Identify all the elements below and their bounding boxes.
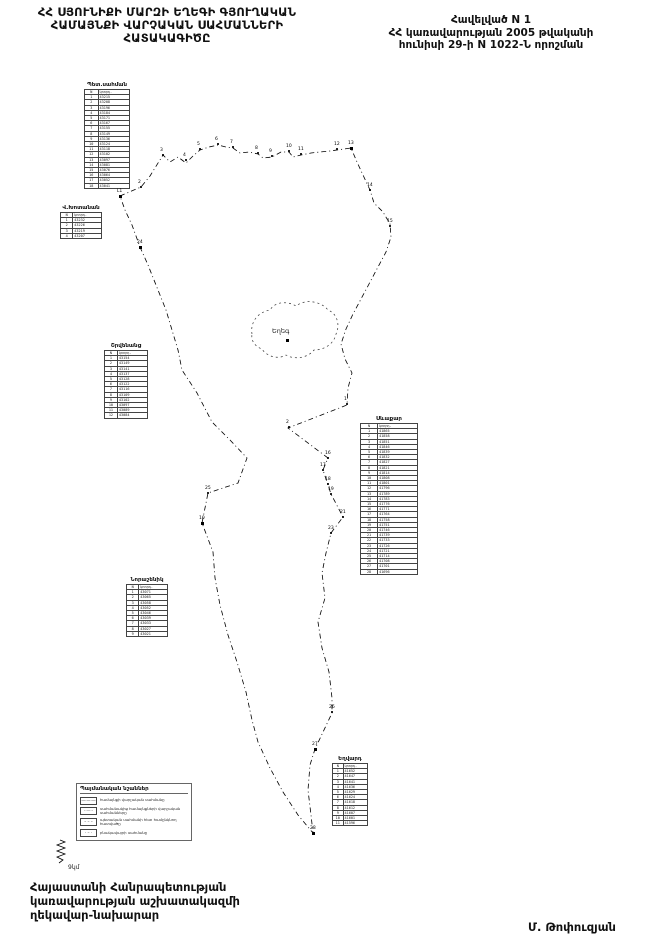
coord-table-label: Եղվարդ [332,756,368,762]
legend-item-label: սահմանակից համայնքների վարչական սահմաննե… [100,807,188,815]
boundary-point-label: 24 [137,240,143,245]
community-boundary-line [120,145,391,833]
boundary-point-label: 9 [269,149,272,154]
boundary-point [346,403,348,405]
scale-mark [57,840,65,863]
boundary-point-label: 23 [328,526,334,531]
legend-item: · – ·բնակավայրի սահմանը [80,829,188,837]
boundary-point [331,711,333,713]
legend-item-label: պետական սահմանի հետ համընկնող հատվածը [100,818,188,826]
footer-line2: կառավարության աշխատակազմի [30,894,240,908]
boundary-point [119,195,122,198]
boundary-point [336,148,338,150]
village-contour [252,302,338,358]
boundary-point [140,186,142,188]
boundary-point-label: 12 [334,142,340,147]
boundary-point [342,516,344,518]
coord-table-grid: Nկոորդ.143215243208343196443184543171643… [84,89,130,189]
boundary-point-label: 6 [215,137,218,142]
legend-symbol-icon: – – – [80,818,97,826]
boundary-point [369,189,371,191]
boundary-point-label: 11 [298,147,304,152]
legend-symbol-icon: ······· [80,807,97,815]
boundary-point-label: 27 [312,742,318,747]
boundary-point [327,483,329,485]
footer-line1: Հայաստանի Հանրապետության [30,880,240,894]
boundary-point-label: 8 [255,146,258,151]
coord-table-grid: Nկոորդ.143154243149343141443137543128643… [104,350,148,419]
coord-table-label: Նորաշենիկ [126,577,168,583]
boundary-point-label: 2 [138,180,141,185]
legend-item: ·······սահմանակից համայնքների վարչական ս… [80,807,188,815]
footer-text: Հայաստանի Հանրապետության կառավարության ա… [30,880,240,922]
boundary-point-label: 14 [367,183,373,188]
boundary-point-label: 19 [328,487,334,492]
boundary-point [288,150,290,152]
legend-title: Պայմանական նշաններ [80,786,188,794]
legend: Պայմանական նշաններ —·—·—համայնքի վարչակա… [76,783,192,841]
boundary-point [139,246,142,249]
boundary-point-label: 16 [325,451,331,456]
boundary-point-label: 1 [344,397,347,402]
village-center-mark [286,339,289,342]
boundary-point [312,832,315,835]
coord-table-grid: Nկոորդ.141865241858341851441846541839641… [360,423,418,575]
boundary-point-label: 25 [205,486,211,491]
legend-item-label: համայնքի վարչական սահմանը [100,798,165,802]
legend-item: —·—·—համայնքի վարչական սահմանը [80,797,188,805]
boundary-point-label: Լ1 [117,189,122,194]
coord-table-Եղվարդ: ԵղվարդNկոորդ.141652241647341641441636541… [332,756,368,826]
village-label: Եղեգ [272,327,289,335]
boundary-point [300,153,302,155]
boundary-point [330,532,332,534]
coord-table-Նորաշենիկ: ՆորաշենիկNկոորդ.143071243065343058443052… [126,577,168,637]
scale-label: 9կմ [68,864,79,871]
boundary-point-label: 26 [329,705,335,710]
boundary-point [257,152,259,154]
boundary-point [201,522,204,525]
coord-table-grid: Nկոորդ.143071243065343058443052543046643… [126,584,168,637]
coord-table-Պետ.սահման: Պետ.սահմանNկոորդ.14321524320834319644318… [84,82,130,189]
boundary-point [288,426,290,428]
boundary-point [217,143,219,145]
coord-table-grid: Nկոորդ.143232243226343219443207 [60,212,102,239]
boundary-point [271,155,273,157]
boundary-point [232,146,234,148]
boundary-point-label: 10 [286,144,292,149]
legend-symbol-icon: · – · [80,829,97,837]
boundary-point [389,225,391,227]
footer-line3: ղեկավար-նախարար [30,908,240,922]
boundary-point-label: 5 [197,142,200,147]
boundary-point [314,748,317,751]
coord-table-grid: Nկոորդ.141652241647341641441636541629641… [332,763,368,826]
boundary-point-label: 15 [387,219,393,224]
boundary-point [330,493,332,495]
boundary-point-label: 3 [160,148,163,153]
legend-item-label: բնակավայրի սահմանը [100,831,147,835]
legend-symbol-icon: —·—·— [80,797,97,805]
map-sheet: ՀՀ ՍՅՈՒՆԻՔԻ ՄԱՐԶԻ ԵՂԵԳԻ ԳՅՈՒՂԱԿԱՆ ՀԱՄԱՅՆ… [0,0,659,942]
boundary-point-label: 21 [340,510,346,515]
boundary-point-label: 13 [348,141,354,146]
coord-table-Սևաքար: ՍևաքարNկոորդ.141865241858341851441846541… [360,416,418,575]
boundary-point-label: 2 [286,420,289,425]
legend-items: —·—·—համայնքի վարչական սահմանը·······սահ… [80,797,188,837]
boundary-point [185,159,187,161]
coord-table-Շրվենանց: ՇրվենանցNկոորդ.1431542431493431414431375… [104,343,148,419]
boundary-point-label: 28 [310,826,316,831]
boundary-point [207,492,209,494]
coord-table-Վ.Խոտանան: Վ.ԽոտանանNկոորդ.143232243226343219443207 [60,205,102,239]
boundary-point [322,469,324,471]
boundary-point-label: 18 [325,477,331,482]
boundary-point-label: 7 [230,140,233,145]
boundary-point-label: 17 [320,463,326,468]
boundary-point [199,148,201,150]
boundary-point [327,457,329,459]
coord-table-label: Շրվենանց [104,343,148,349]
boundary-point-label: 10 [199,516,205,521]
boundary-point [350,147,353,150]
boundary-point [162,154,164,156]
boundary-point-label: 4 [183,153,186,158]
coord-table-label: Պետ.սահման [84,82,130,88]
legend-item: – – –պետական սահմանի հետ համընկնող հատվա… [80,818,188,826]
signature: Մ. Թոփուզյան [528,920,616,934]
coord-table-label: Վ.Խոտանան [60,205,102,211]
coord-table-label: Սևաքար [360,416,418,422]
